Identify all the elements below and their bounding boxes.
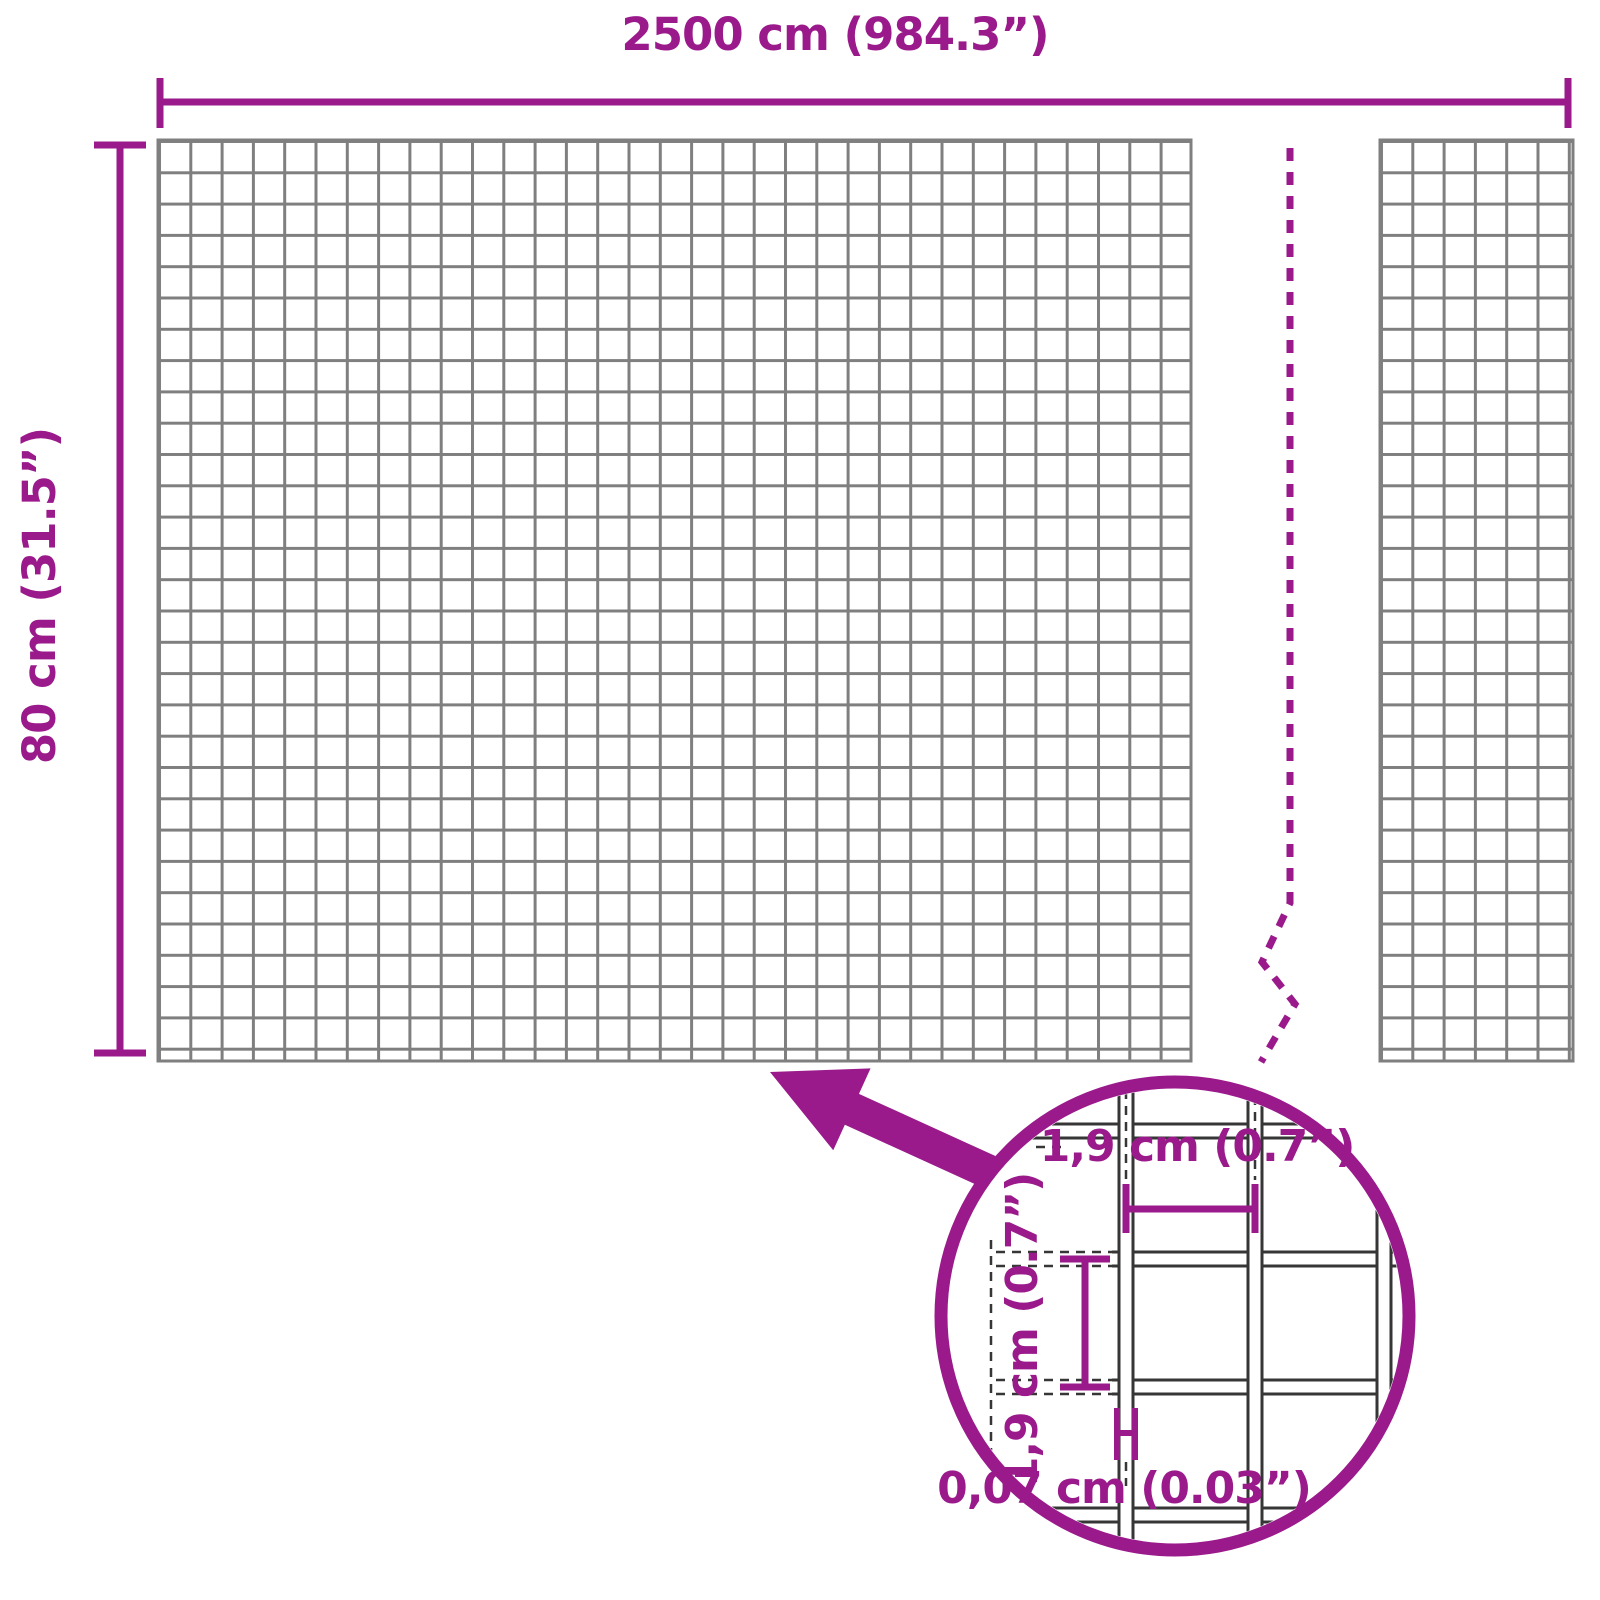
diagram-graphics (0, 0, 1600, 1600)
product-dimension-diagram: 2500 cm (984.3”) 80 cm (31.5”) 1,9 cm (0… (0, 0, 1600, 1600)
height-dimension-line (94, 145, 146, 1053)
width-dimension-line (160, 78, 1568, 128)
wire-thickness-label: 0,07 cm (0.03”) (924, 1462, 1324, 1516)
mesh-panel-left (158, 140, 1191, 1061)
height-dimension-label: 80 cm (31.5”) (13, 196, 67, 996)
break-line (1261, 148, 1295, 1062)
mesh-panel-right (1380, 140, 1573, 1061)
width-dimension-label: 2500 cm (984.3”) (435, 8, 1235, 62)
magnifier-mesh-width-label: 1,9 cm (0.7”) (997, 1120, 1397, 1174)
